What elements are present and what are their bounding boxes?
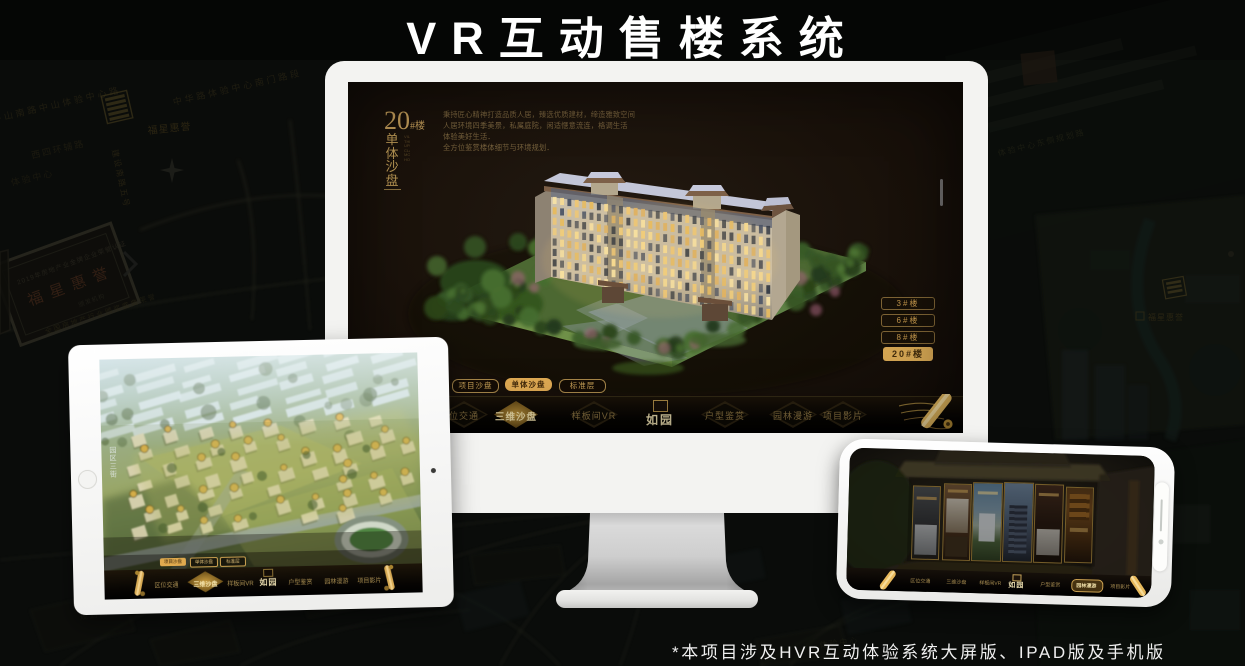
svg-text:福星惠誉: 福星惠誉 [1148, 312, 1184, 322]
